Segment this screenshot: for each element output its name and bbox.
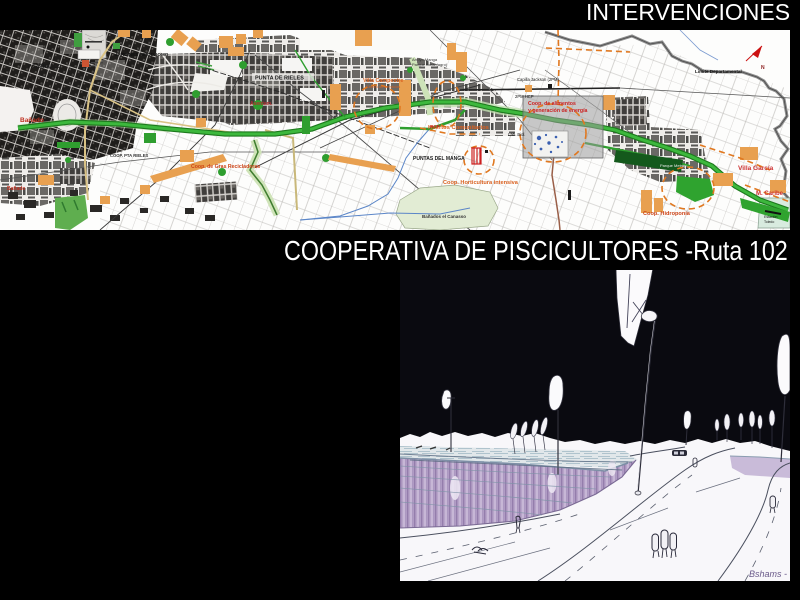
svg-text:P.CARRASCO: P.CARRASCO [28, 64, 61, 70]
svg-text:Capilla Jackson (2PM): Capilla Jackson (2PM) [517, 77, 559, 82]
svg-text:Coop. Horticultura intensiva: Coop. Horticultura intensiva [443, 180, 519, 186]
svg-text:Toledo: Toledo [764, 220, 774, 224]
svg-text:Coop. de Gras Recicladoras: Coop. de Gras Recicladoras [191, 164, 260, 170]
svg-text:Centro de servicios: Centro de servicios [366, 84, 400, 89]
svg-text:PUNTAS DEL MANGA: PUNTAS DEL MANGA [413, 156, 465, 162]
svg-text:Bshams -: Bshams - [749, 569, 787, 579]
svg-text:JARDINES HIPODROMO: JARDINES HIPODROMO [115, 52, 169, 57]
svg-text:Asentam.: Asentam. [250, 101, 273, 107]
svg-text:Bañado: Bañado [7, 186, 25, 192]
svg-text:Coop. de alimentos: Coop. de alimentos [528, 101, 576, 107]
svg-text:Bañados el Canasso: Bañados el Canasso [422, 214, 466, 219]
svg-text:Parque Metrop.: Parque Metrop. [660, 163, 688, 168]
svg-text:Villa García: Villa García [738, 165, 774, 172]
svg-text:COOP. PTA RIELES: COOP. PTA RIELES [110, 153, 149, 158]
svg-text:Lab. Biol.: Lab. Biol. [508, 132, 525, 137]
svg-text:y generación de energía: y generación de energía [528, 108, 588, 114]
svg-text:Limite Departamental: Limite Departamental [695, 69, 742, 74]
svg-text:N: N [761, 65, 765, 71]
svg-text:Coop. Hidroponía: Coop. Hidroponía [643, 211, 691, 217]
svg-text:Bañado: Bañado [20, 117, 44, 124]
svg-text:PUNTA DE RIELES: PUNTA DE RIELES [255, 76, 304, 82]
svg-text:2PM HCP: 2PM HCP [515, 94, 534, 99]
svg-text:M. Caribe: M. Caribe [756, 191, 784, 197]
svg-text:Parque lineal (agro): Parque lineal (agro) [412, 62, 448, 67]
svg-text:HCP: HCP [430, 124, 440, 129]
svg-text:Estación: Estación [764, 215, 777, 219]
